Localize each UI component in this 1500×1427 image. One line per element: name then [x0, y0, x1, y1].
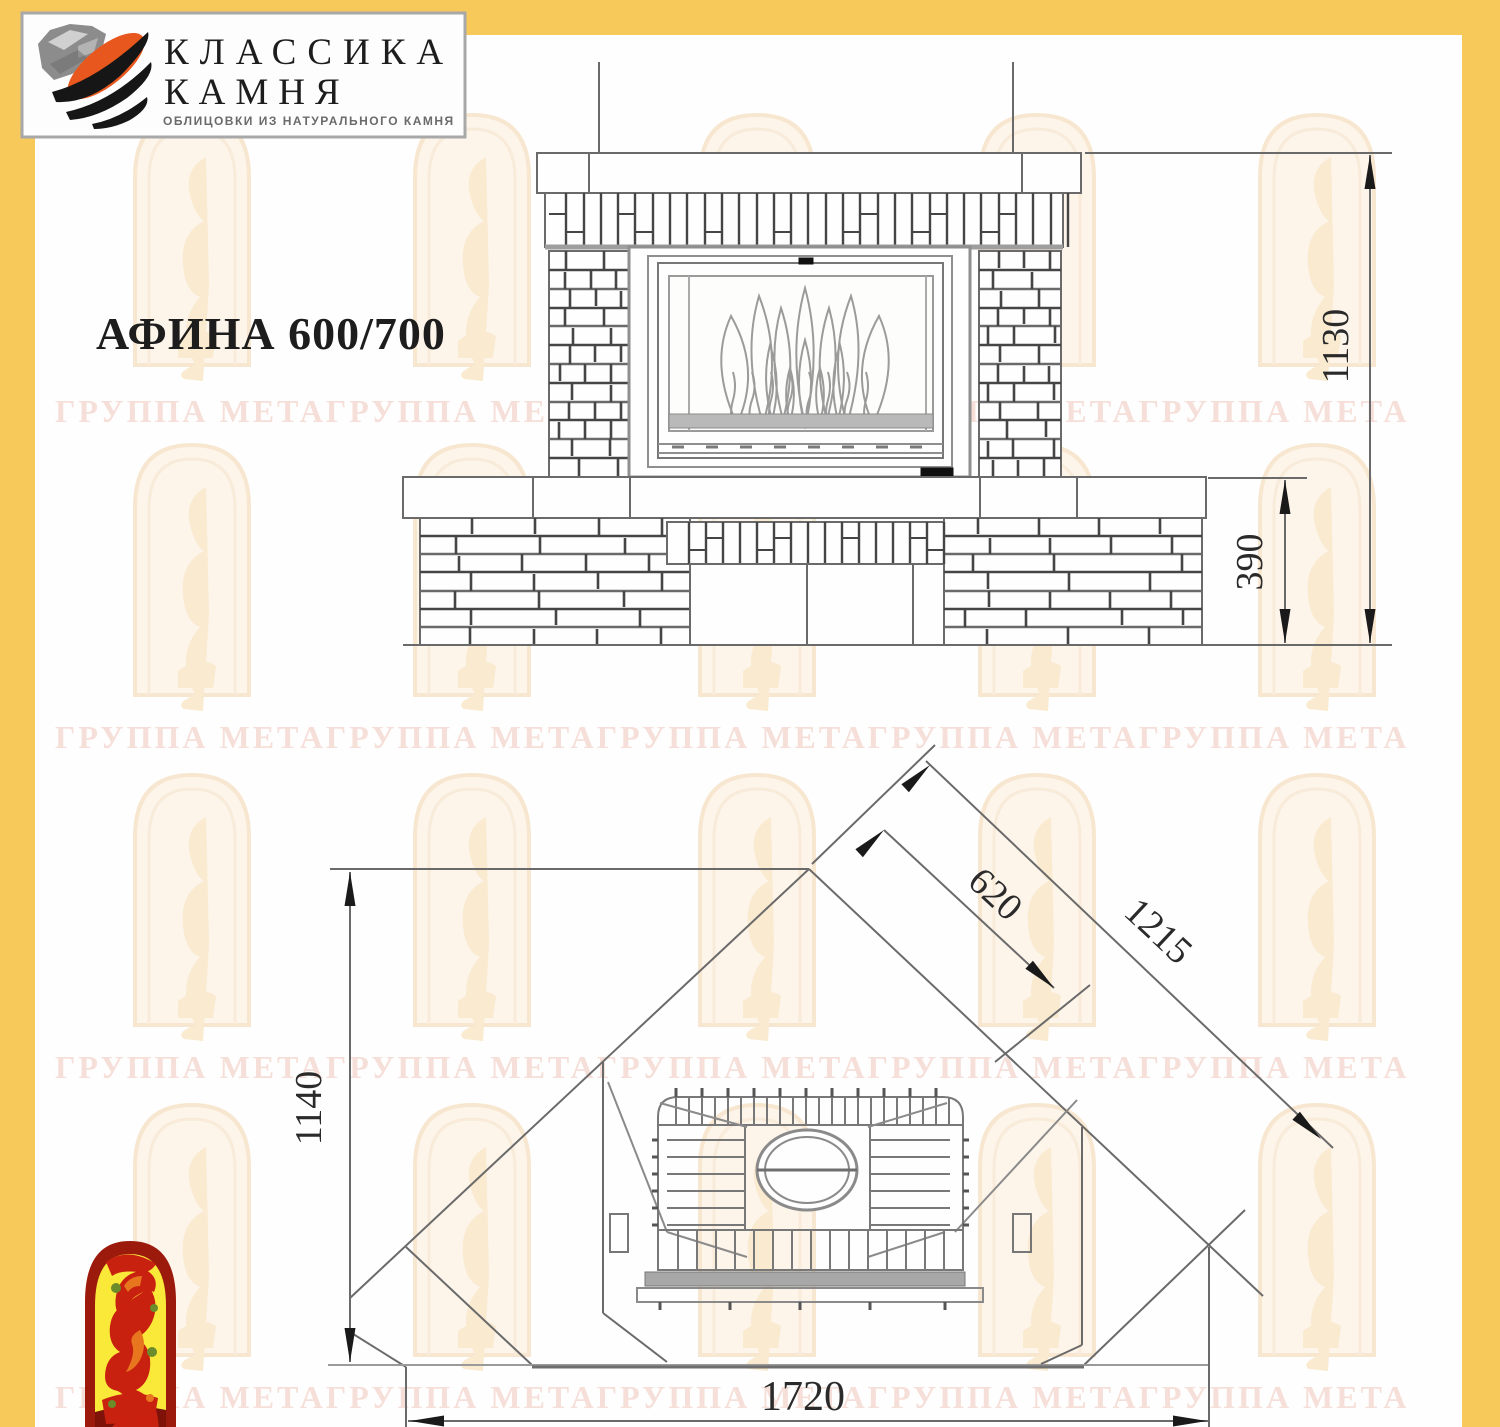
- svg-text:1720: 1720: [761, 1374, 845, 1420]
- svg-text:ГРУППА МЕТАГРУППА МЕТАГРУППА М: ГРУППА МЕТАГРУППА МЕТАГРУППА МЕТАГРУППА …: [55, 1049, 1409, 1085]
- svg-text:1215: 1215: [1116, 890, 1200, 973]
- svg-text:390: 390: [1229, 534, 1271, 591]
- svg-text:КЛАССИКА: КЛАССИКА: [164, 32, 454, 73]
- svg-text:1130: 1130: [1315, 309, 1357, 384]
- svg-text:ГРУППА МЕТАГРУППА МЕТАГРУППА М: ГРУППА МЕТАГРУППА МЕТАГРУППА МЕТАГРУППА …: [55, 1379, 1409, 1415]
- svg-text:ГРУППА МЕТАГРУППА МЕТАГРУППА М: ГРУППА МЕТАГРУППА МЕТАГРУППА МЕТАГРУППА …: [55, 719, 1409, 755]
- svg-text:1140: 1140: [288, 1071, 330, 1146]
- svg-text:АФИНА 600/700: АФИНА 600/700: [96, 308, 446, 359]
- svg-text:КАМНЯ: КАМНЯ: [164, 72, 350, 113]
- svg-text:ОБЛИЦОВКИ ИЗ НАТУРАЛЬНОГО КАМН: ОБЛИЦОВКИ ИЗ НАТУРАЛЬНОГО КАМНЯ: [163, 114, 455, 128]
